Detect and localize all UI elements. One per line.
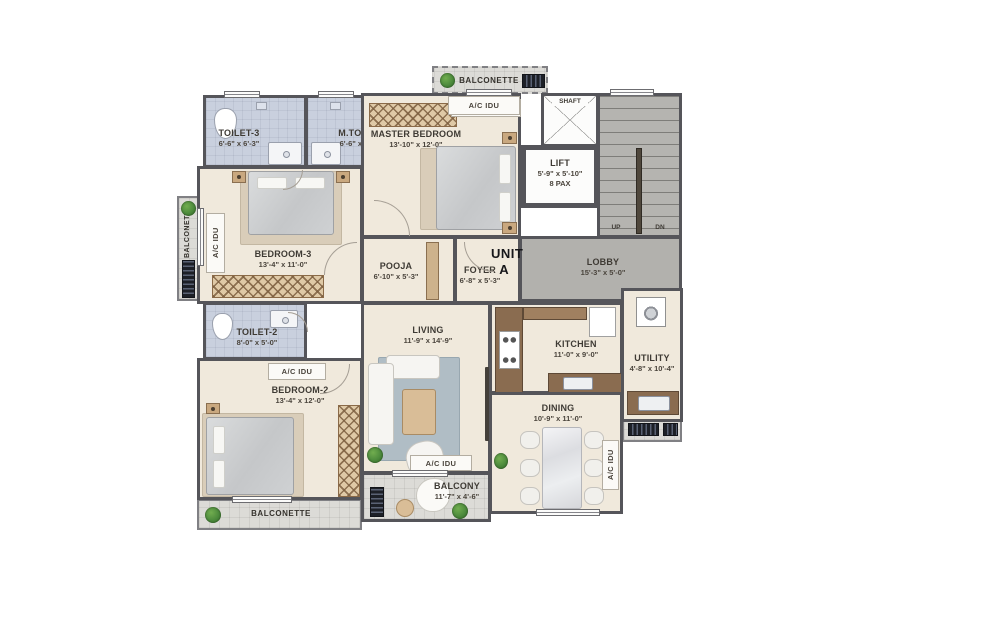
kitchen-counter [523,307,587,320]
window [224,91,260,98]
dining-chair [520,487,540,505]
grille-icon [522,74,545,88]
shower-icon [256,102,267,110]
utility-name: UTILITY [626,353,678,364]
toilet3-dims: 6'-6" x 6'-3" [208,139,270,148]
dining-name: DINING [518,403,598,414]
unit-label-line2: A [491,262,517,277]
dining-chair [584,487,604,505]
dining-chair [520,431,540,449]
window [466,89,512,96]
shaft-label: SHAFT [552,98,588,106]
toilet2-dims: 8'-0" x 5'-0" [222,338,292,347]
room-balcony: BALCONY 11'-7" x 4'-6" [361,472,491,522]
shower-icon [330,102,341,110]
pooja-dims: 6'-10" x 5'-3" [366,272,426,281]
balcony-chair [416,478,450,512]
grille-icon [182,260,195,298]
nightstand [206,403,220,414]
dining-chair [520,459,540,477]
dining-chair [584,459,604,477]
window [197,208,204,266]
wardrobe-icon [338,405,360,497]
sofa [386,355,440,379]
plant-icon [367,447,383,463]
toilet-icon [212,313,233,340]
lobby-name: LOBBY [560,257,646,268]
window [232,496,292,503]
ac-idu-label: A/C IDU [268,363,326,380]
window [536,509,600,516]
dining-dims: 10'-9" x 11'-0" [518,414,598,423]
living-name: LIVING [378,325,478,336]
living-dims: 11'-9" x 14'-9" [378,336,478,345]
room-pooja: POOJA 6'-10" x 5'-3" [361,236,456,304]
sink-icon [268,142,302,165]
room-bedroom-3: A/C IDU BEDROOM-3 13'-4" x 11'-0" [197,166,363,304]
room-toilet-3: TOILET-3 6'-6" x 6'-3" [203,95,307,168]
plant-icon [452,503,468,519]
nightstand [502,132,517,144]
balconette-top-label: BALCONETTE [456,76,522,86]
room-living: LIVING 11'-9" x 14'-9" A/C IDU [361,302,491,474]
room-shaft: SHAFT [541,93,599,147]
wardrobe-icon [369,103,457,127]
pillow [213,460,225,488]
bedroom3-name: BEDROOM-3 [228,249,338,260]
lobby-dims: 15'-3" x 5'-0" [560,268,646,277]
plant-icon [181,201,196,216]
balconette-bottom: BALCONETTE [197,499,362,530]
master-name: MASTER BEDROOM [368,129,464,140]
grille-icon [663,423,678,436]
pillow [499,192,511,222]
utility-counter [627,391,679,415]
nightstand [502,222,517,234]
unit-label-line1: UNIT [491,246,517,261]
pooja-cabinet [426,242,439,300]
bedroom2-dims: 13'-4" x 12'-0" [248,396,352,405]
foyer-dims: 6'-8" x 5'-3" [457,276,503,285]
plant-icon [440,73,455,88]
bed [206,417,294,495]
toilet2-name: TOILET-2 [222,327,292,338]
window [318,91,354,98]
room-lift: LIFT 5'-9" x 5'-10" 8 PAX [521,145,599,208]
room-kitchen: KITCHEN 11'-0" x 9'-0" [489,302,623,394]
toilet-icon [214,108,237,139]
grille-icon [370,487,384,517]
kitchen-name: KITCHEN [536,339,616,350]
floor-plan: BALCONETTE BALCONETTE BALCONETTE SHAFT U… [0,0,991,629]
lift-dims: 5'-9" x 5'-10" [528,169,592,178]
lift-pax: 8 PAX [528,179,592,188]
plant-icon [205,507,221,523]
nightstand [232,171,246,183]
balconette-bottom-label: BALCONETTE [239,509,323,519]
grille-icon [628,423,659,436]
pillow [499,154,511,184]
ac-idu-label: A/C IDU [206,213,225,273]
pillow [213,426,225,454]
stairs-up-label: UP [606,224,626,232]
ac-idu-label: A/C IDU [602,440,619,490]
kitchen-dims: 11'-0" x 9'-0" [536,350,616,359]
dining-table [542,427,582,509]
plant-icon [494,453,508,469]
unit-label: UNIT A [491,246,517,277]
ac-idu-label: A/C IDU [410,455,472,471]
sink-icon [638,396,670,411]
sliding-door [392,470,448,477]
sofa [368,363,394,445]
washing-machine-icon [636,297,666,327]
bed [436,146,516,230]
fridge-icon [589,307,616,337]
utility-dims: 4'-8" x 10'-4" [626,364,678,373]
stairs-dn-label: DN [650,224,670,232]
wardrobe-icon [212,275,324,298]
room-staircase: UP DN [597,93,682,238]
stove-icon [499,331,520,369]
balconette-left-label: BALCONETTE [184,218,193,258]
lift-name: LIFT [528,158,592,169]
balcony-table [396,499,414,517]
window [610,89,654,96]
bedroom3-dims: 13'-4" x 11'-0" [228,260,338,269]
ac-idu-label: A/C IDU [448,96,520,115]
sink-icon [311,142,341,165]
stair-divider [636,148,642,234]
room-utility: UTILITY 4'-8" x 10'-4" [621,288,683,422]
dining-chair [584,431,604,449]
kitchen-counter [548,373,622,393]
nightstand [336,171,350,183]
sink-icon [563,377,593,390]
coffee-table [402,389,436,435]
pooja-name: POOJA [366,261,426,272]
